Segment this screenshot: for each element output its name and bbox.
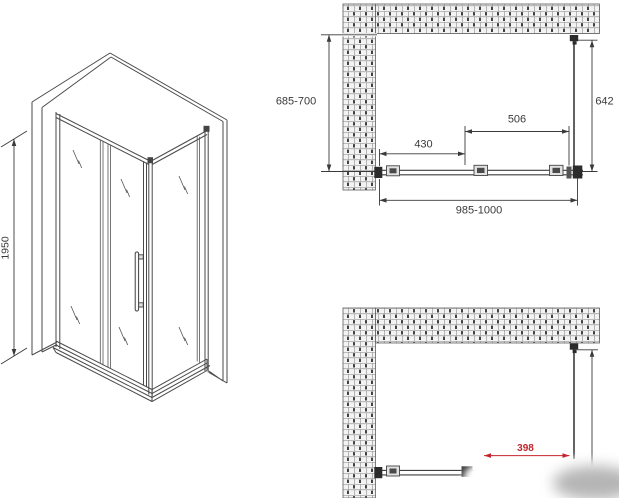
wall-hatch-left (343, 308, 376, 498)
technical-drawing-page: 1950 (0, 0, 619, 498)
glass-sparkles (71, 150, 188, 345)
roller (387, 466, 400, 476)
wall-bracket (570, 344, 578, 350)
rail-right-block (567, 167, 572, 179)
iso-glass-edges (100, 136, 199, 369)
glass-depth-dimension-label: 642 (595, 96, 613, 108)
wall-hatch-left (343, 4, 376, 190)
height-dimension-label: 1950 (0, 236, 12, 260)
door-opening-dimension-label: 398 (517, 443, 534, 454)
iso-frame-profiles (56, 112, 208, 396)
wall-bracket (570, 35, 578, 41)
opening-width-dimension-label: 506 (508, 114, 526, 126)
height-dimension: 1950 (0, 131, 27, 364)
wall-hatch-top (376, 308, 600, 343)
lower-dimension-lines (578, 350, 599, 466)
blur-overlay (465, 457, 619, 498)
lower-plan-view: 398 (343, 308, 619, 498)
roller (474, 165, 488, 175)
rail-left-bracket (374, 467, 382, 478)
corner-post-cap (148, 157, 154, 163)
back-post-cap (204, 126, 210, 132)
rail-corner-block (573, 166, 583, 179)
shower-tray (53, 341, 210, 402)
depth-dimension-label: 685-700 (276, 96, 316, 108)
rail-left-bracket (374, 167, 382, 178)
roller (550, 165, 564, 175)
door-handle (135, 252, 143, 311)
iso-wall-slabs (32, 53, 227, 383)
iso-door-leading-stile (144, 161, 147, 386)
roller (387, 166, 400, 176)
door-width-dimension-label: 430 (414, 139, 432, 151)
wall-hatch-top (376, 4, 600, 34)
total-width-dimension-label: 985-1000 (456, 205, 503, 217)
isometric-view: 1950 (0, 53, 227, 402)
door-opening-dimension: 398 (484, 443, 570, 458)
upper-plan-view: 685-700 642 506 430 985-1000 (276, 4, 614, 217)
